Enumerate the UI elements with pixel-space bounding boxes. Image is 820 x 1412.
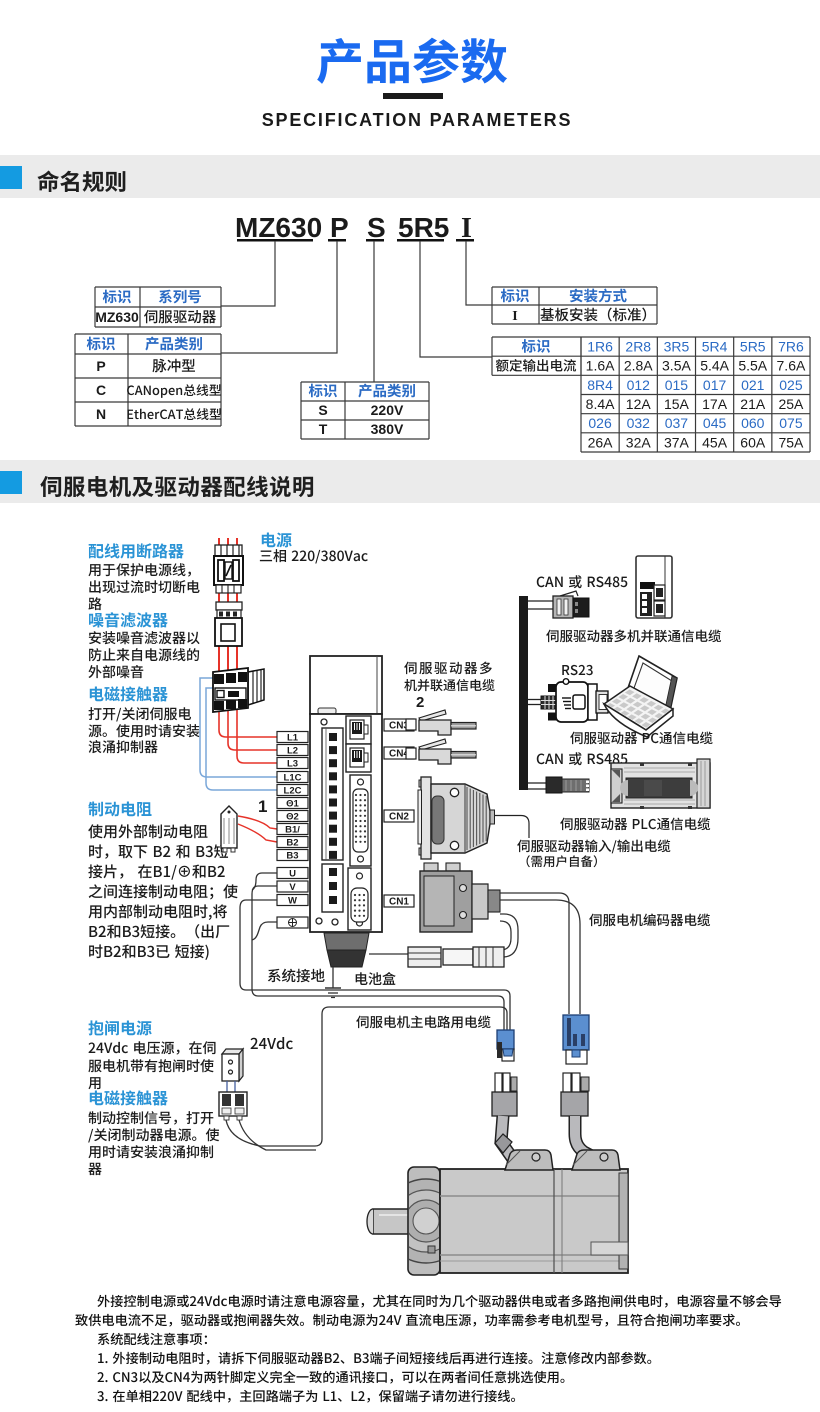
svg-text:037: 037: [665, 415, 689, 431]
svg-text:CN2: CN2: [389, 812, 409, 823]
svg-text:015: 015: [665, 377, 689, 393]
svg-text:U: U: [289, 869, 296, 880]
svg-text:012: 012: [627, 377, 651, 393]
svg-text:P: P: [96, 358, 105, 374]
svg-text:21A: 21A: [740, 396, 766, 412]
svg-text:017: 017: [703, 377, 727, 393]
svg-text:N: N: [96, 406, 106, 422]
svg-text:15A: 15A: [664, 396, 690, 412]
svg-text:2.8A: 2.8A: [624, 358, 653, 374]
svg-text:025: 025: [779, 377, 803, 393]
svg-text:26A: 26A: [588, 434, 614, 450]
svg-text:5R4: 5R4: [702, 339, 728, 355]
svg-text:032: 032: [627, 415, 651, 431]
svg-text:5R5: 5R5: [398, 212, 449, 243]
svg-text:Θ2: Θ2: [286, 812, 299, 823]
svg-text:T: T: [319, 421, 328, 437]
svg-text:25A: 25A: [778, 396, 804, 412]
svg-text:7R6: 7R6: [778, 339, 804, 355]
svg-text:026: 026: [588, 415, 612, 431]
svg-text:75A: 75A: [778, 434, 804, 450]
svg-text:5R5: 5R5: [740, 339, 766, 355]
svg-text:2: 2: [416, 694, 424, 711]
svg-text:B1/: B1/: [285, 825, 300, 836]
svg-text:2R8: 2R8: [625, 339, 651, 355]
svg-text:CN1: CN1: [389, 897, 409, 908]
svg-text:220V: 220V: [371, 402, 404, 418]
svg-text:5.4A: 5.4A: [700, 358, 729, 374]
svg-text:S: S: [367, 212, 386, 243]
svg-text:12A: 12A: [626, 396, 652, 412]
svg-text:MZ630: MZ630: [235, 212, 322, 243]
svg-text:SPECIFICATION PARAMETERS: SPECIFICATION PARAMETERS: [262, 110, 573, 130]
svg-text:B3: B3: [286, 851, 298, 862]
svg-text:075: 075: [779, 415, 803, 431]
svg-text:45A: 45A: [702, 434, 728, 450]
svg-text:1.6A: 1.6A: [586, 358, 615, 374]
svg-text:5.5A: 5.5A: [738, 358, 767, 374]
svg-text:L1: L1: [287, 733, 299, 744]
svg-text:Θ1: Θ1: [286, 799, 299, 810]
svg-text:V: V: [289, 882, 296, 893]
svg-text:60A: 60A: [740, 434, 766, 450]
svg-text:L3: L3: [287, 759, 298, 770]
svg-text:L2C: L2C: [284, 786, 302, 797]
svg-text:021: 021: [741, 377, 765, 393]
svg-text:1: 1: [258, 797, 267, 816]
svg-text:37A: 37A: [664, 434, 690, 450]
svg-text:I: I: [512, 309, 517, 324]
svg-text:060: 060: [741, 415, 765, 431]
svg-text:7.6A: 7.6A: [777, 358, 806, 374]
svg-text:1R6: 1R6: [587, 339, 613, 355]
svg-text:P: P: [330, 212, 349, 243]
svg-text:MZ630: MZ630: [95, 309, 139, 325]
svg-text:380V: 380V: [371, 421, 404, 437]
svg-text:L1C: L1C: [284, 773, 302, 784]
svg-text:8.4A: 8.4A: [586, 396, 615, 412]
svg-text:17A: 17A: [702, 396, 728, 412]
svg-text:045: 045: [703, 415, 727, 431]
svg-text:C: C: [96, 382, 106, 398]
svg-text:3.5A: 3.5A: [662, 358, 691, 374]
svg-text:W: W: [288, 896, 297, 907]
svg-text:32A: 32A: [626, 434, 652, 450]
svg-text:S: S: [318, 402, 327, 418]
svg-text:3R5: 3R5: [664, 339, 690, 355]
svg-text:B2: B2: [286, 838, 298, 849]
svg-text:8R4: 8R4: [587, 377, 613, 393]
svg-text:L2: L2: [287, 746, 298, 757]
